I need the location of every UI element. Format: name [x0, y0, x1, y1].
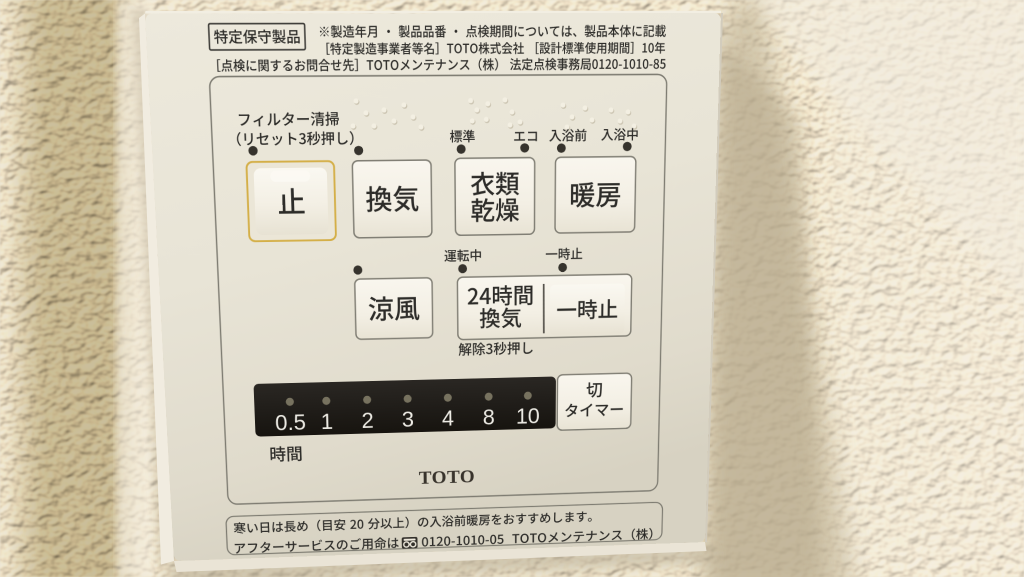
- svg-text:TOTO: TOTO: [419, 465, 476, 488]
- svg-text:1: 1: [320, 410, 333, 434]
- svg-text:0.5: 0.5: [275, 411, 306, 436]
- svg-text:8: 8: [483, 406, 495, 430]
- svg-text:10: 10: [516, 404, 540, 428]
- svg-text:3: 3: [402, 408, 414, 432]
- svg-text:2: 2: [361, 409, 374, 433]
- svg-text:4: 4: [442, 407, 454, 431]
